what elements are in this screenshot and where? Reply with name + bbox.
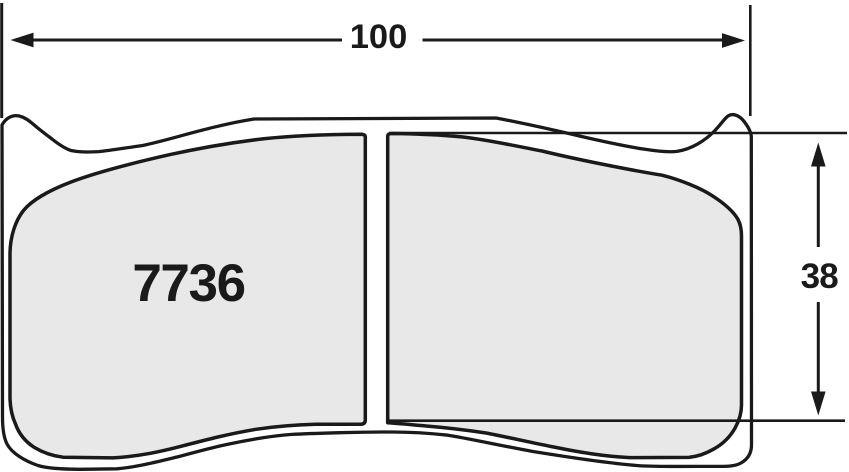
- svg-text:100: 100: [350, 18, 408, 56]
- svg-text:38: 38: [801, 257, 839, 296]
- svg-text:7736: 7736: [132, 254, 244, 313]
